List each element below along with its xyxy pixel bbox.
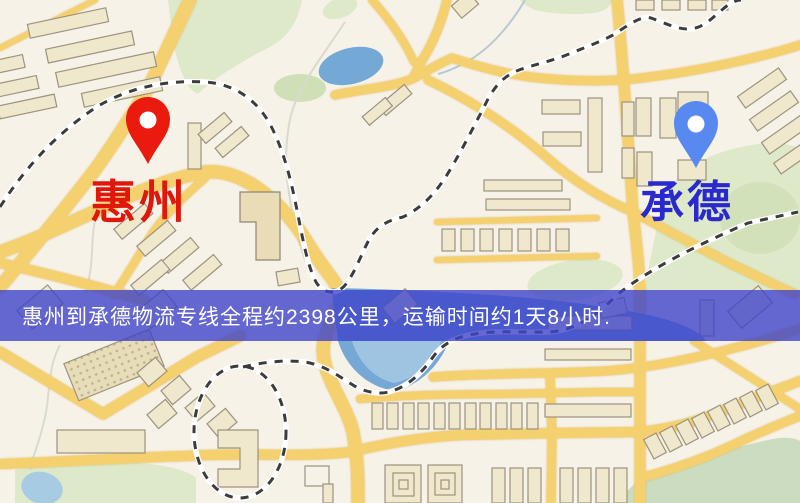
map-screenshot: 惠州 承德 惠州到承德物流专线全程约2398公里，运输时间约1天8小时. (0, 0, 800, 503)
route-info-banner: 惠州到承德物流专线全程约2398公里，运输时间约1天8小时. (0, 290, 800, 341)
map-canvas (0, 0, 800, 503)
destination-city-label: 承德 (640, 181, 734, 225)
origin-city-label: 惠州 (90, 179, 188, 225)
route-info-text: 惠州到承德物流专线全程约2398公里，运输时间约1天8小时. (0, 301, 611, 331)
